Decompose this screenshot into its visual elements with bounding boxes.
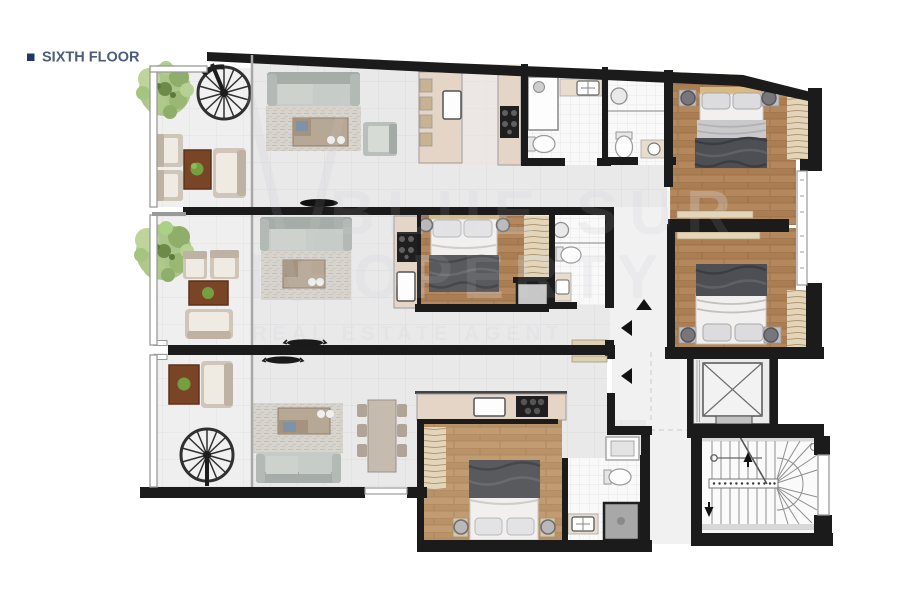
svg-text:PROPERTY: PROPERTY bbox=[247, 243, 668, 312]
svg-text:SIXTH FLOOR: SIXTH FLOOR bbox=[42, 50, 140, 66]
svg-text:BLUE SUR: BLUE SUR bbox=[330, 179, 743, 248]
